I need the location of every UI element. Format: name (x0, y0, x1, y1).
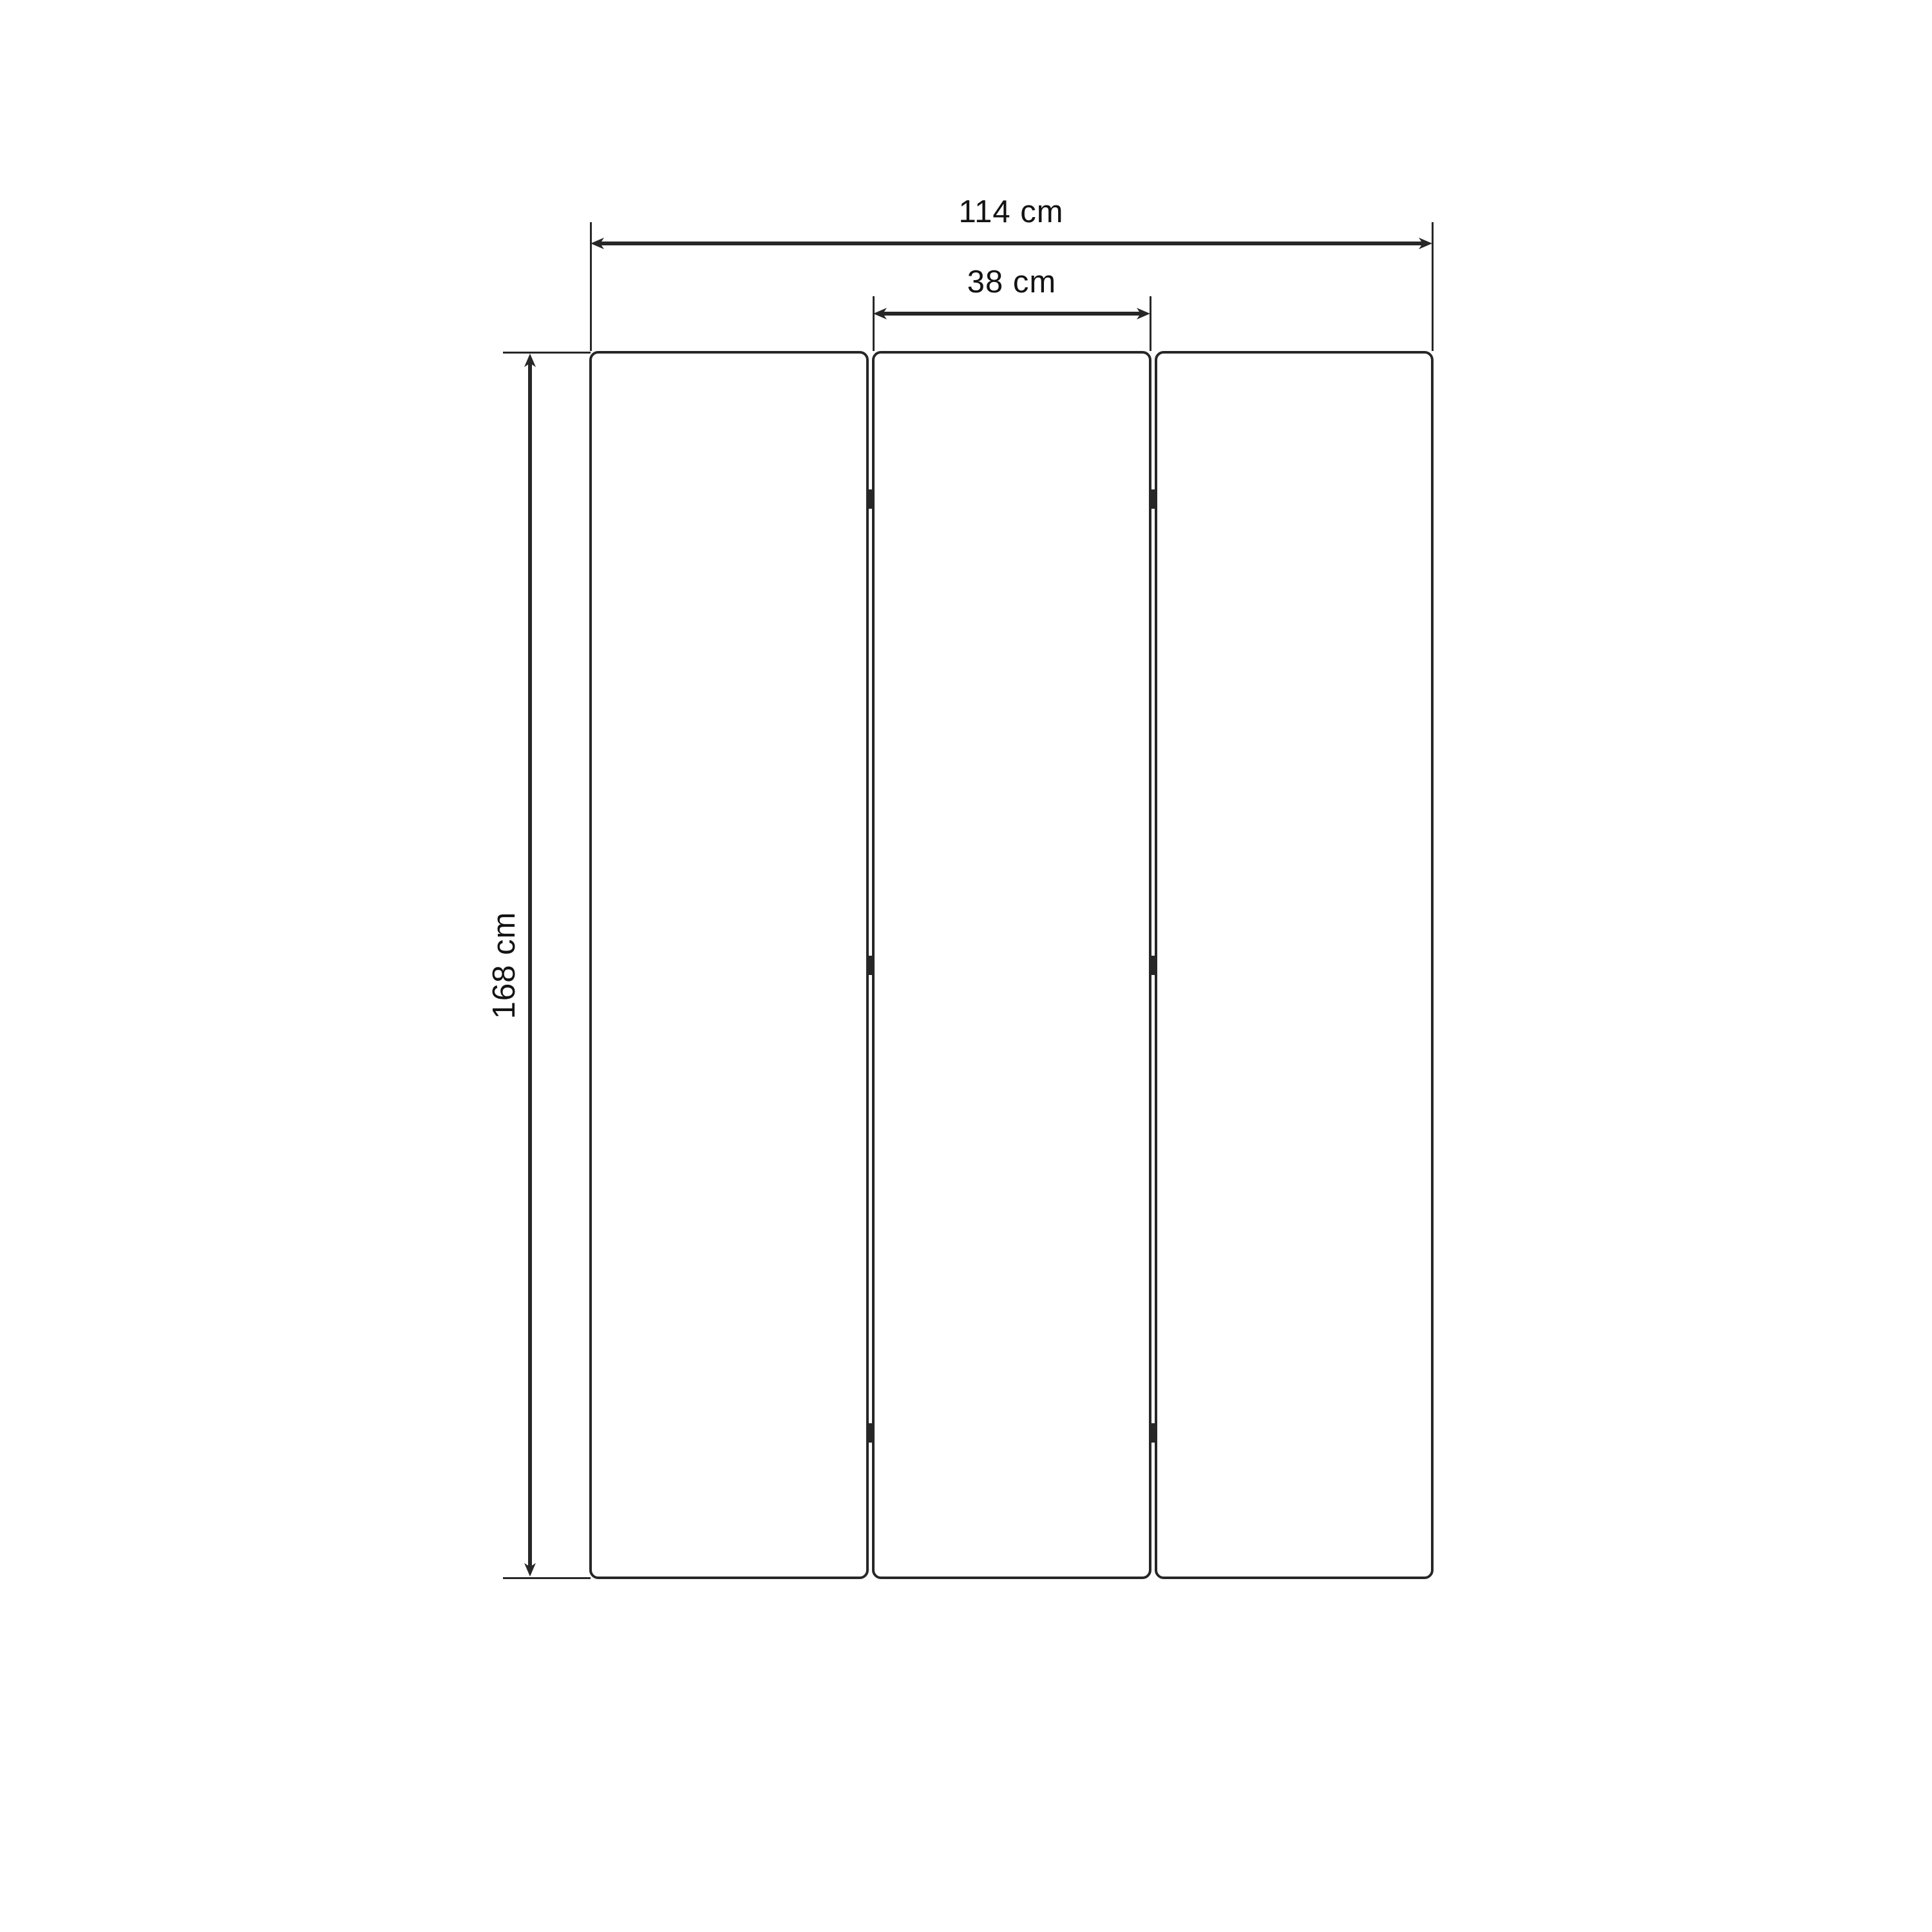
panel-width-dimension-label: 38 cm (967, 264, 1056, 300)
hinge-mark-left-gap-middle (867, 956, 874, 975)
hinge-mark-right-gap-middle (1150, 956, 1157, 975)
dimension-diagram: 114 cm 38 cm 168 cm (0, 0, 1932, 1932)
extension-line-height-bottom (503, 1577, 591, 1579)
overall-width-dimension-arrow (589, 231, 1434, 256)
height-dimension-label: 168 cm (486, 912, 522, 1019)
panel-left (589, 351, 869, 1579)
panel-center (872, 351, 1151, 1579)
hinge-mark-right-gap-bottom (1150, 1423, 1157, 1443)
hinge-mark-left-gap-bottom (867, 1423, 874, 1443)
overall-width-dimension-label: 114 cm (958, 194, 1063, 230)
hinge-mark-left-gap-top (867, 489, 874, 509)
panel-right (1155, 351, 1434, 1579)
panel-width-dimension-arrow (872, 301, 1151, 327)
extension-line-height-top (503, 352, 591, 354)
hinge-mark-right-gap-top (1150, 489, 1157, 509)
